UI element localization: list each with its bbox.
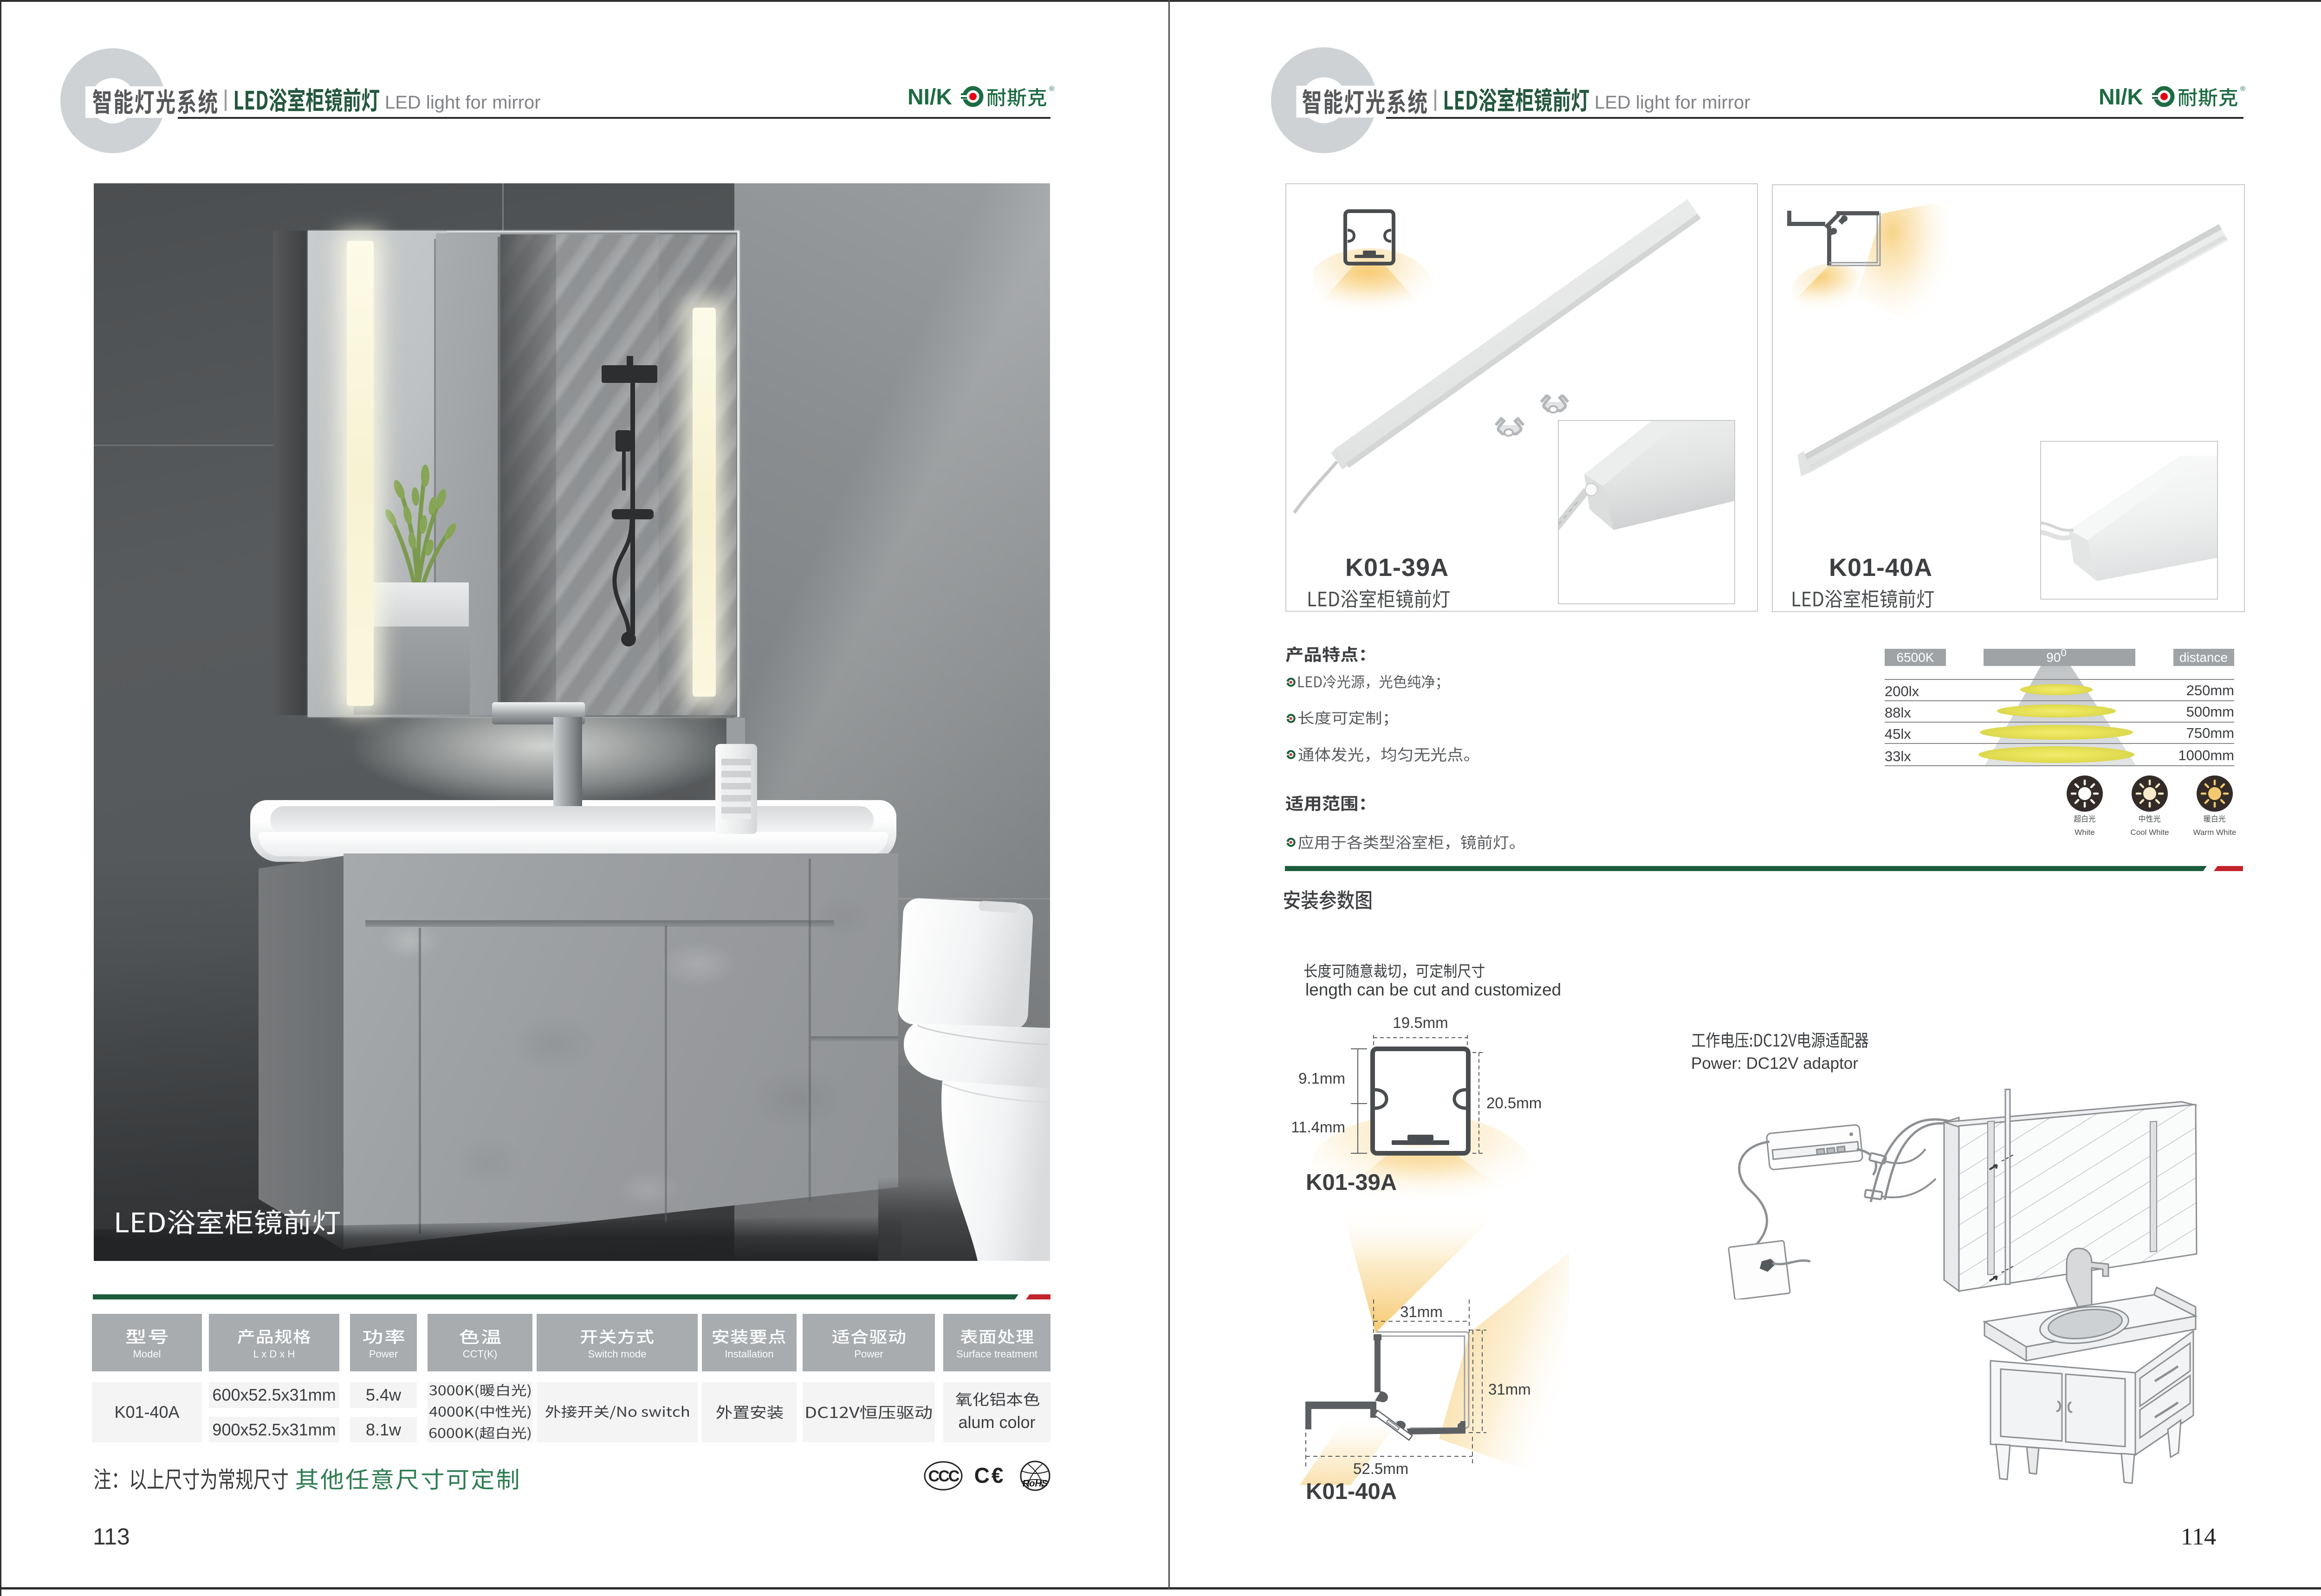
svg-text:200lx: 200lx — [1885, 683, 1919, 699]
svg-text:NI/K: NI/K — [908, 85, 952, 110]
svg-text:500mm: 500mm — [2186, 704, 2234, 720]
svg-text:31mm: 31mm — [1400, 1303, 1443, 1320]
svg-text:11.4mm: 11.4mm — [1291, 1118, 1345, 1136]
svg-text:19.5mm: 19.5mm — [1393, 1014, 1448, 1031]
svg-text:NI/K: NI/K — [2099, 85, 2143, 110]
svg-text:RoHS: RoHS — [1023, 1479, 1048, 1489]
svg-text:750mm: 750mm — [2186, 725, 2234, 741]
svg-text:®: ® — [2240, 85, 2245, 93]
svg-text:distance: distance — [2179, 650, 2228, 665]
svg-text:C€: C€ — [974, 1463, 1005, 1487]
svg-text:6500K: 6500K — [1897, 650, 1934, 665]
svg-text:Cool White: Cool White — [2130, 828, 2169, 837]
svg-text:®: ® — [1049, 85, 1054, 93]
svg-text:45lx: 45lx — [1885, 726, 1911, 742]
svg-text:White: White — [2075, 828, 2094, 837]
svg-text:20.5mm: 20.5mm — [1486, 1094, 1542, 1111]
svg-text:1000mm: 1000mm — [2178, 747, 2234, 763]
svg-text:Warm White: Warm White — [2193, 828, 2237, 837]
svg-text:31mm: 31mm — [1488, 1381, 1531, 1398]
svg-text:250mm: 250mm — [2186, 682, 2234, 698]
svg-text:33lx: 33lx — [1885, 748, 1911, 764]
svg-text:88lx: 88lx — [1885, 704, 1911, 721]
svg-text:CCC: CCC — [928, 1467, 960, 1485]
svg-text:9.1mm: 9.1mm — [1298, 1070, 1345, 1087]
